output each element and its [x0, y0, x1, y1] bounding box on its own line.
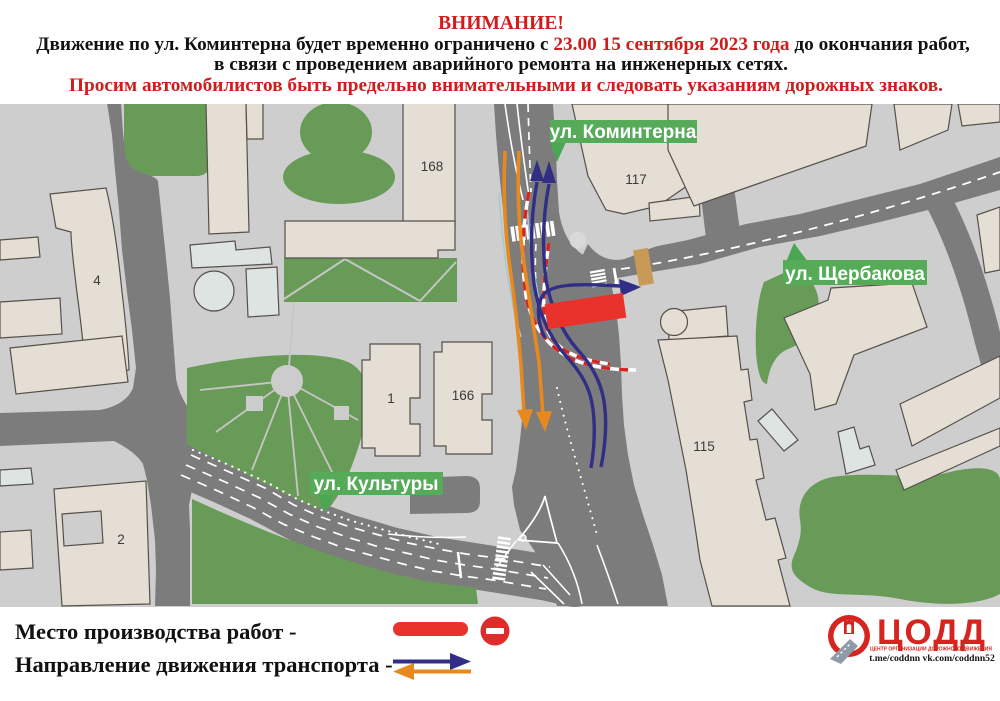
- svg-text:ул. Коминтерна: ул. Коминтерна: [550, 122, 697, 143]
- svg-text:168: 168: [421, 159, 444, 174]
- svg-text:ул. Щербакова: ул. Щербакова: [785, 264, 925, 285]
- svg-text:4: 4: [93, 273, 101, 288]
- svg-text:1: 1: [387, 391, 395, 406]
- svg-text:2: 2: [117, 532, 125, 547]
- svg-text:Место производства работ -: Место производства работ -: [15, 619, 296, 644]
- svg-text:115: 115: [693, 439, 715, 454]
- svg-text:ЦЕНТР ОРГАНИЗАЦИИ ДОРОЖНОГО ДВ: ЦЕНТР ОРГАНИЗАЦИИ ДОРОЖНОГО ДВИЖЕНИЯ: [870, 647, 992, 653]
- svg-text:ВНИМАНИЕ!: ВНИМАНИЕ!: [438, 13, 564, 34]
- svg-text:ул. Культуры: ул. Культуры: [314, 474, 439, 495]
- svg-text:166: 166: [452, 388, 475, 403]
- svg-text:в связи с проведением аварийно: в связи с проведением аварийного ремонта…: [214, 54, 788, 75]
- svg-text:Просим автомобилистов быть пре: Просим автомобилистов быть предельно вни…: [69, 75, 943, 96]
- svg-text:Направление движения транспорт: Направление движения транспорта -: [15, 652, 393, 677]
- svg-text:t.me/coddnn vk.com/coddnn52: t.me/coddnn vk.com/coddnn52: [869, 653, 995, 664]
- svg-text:117: 117: [625, 172, 647, 187]
- svg-text:Движение по ул. Коминтерна буд: Движение по ул. Коминтерна будет временн…: [36, 34, 970, 55]
